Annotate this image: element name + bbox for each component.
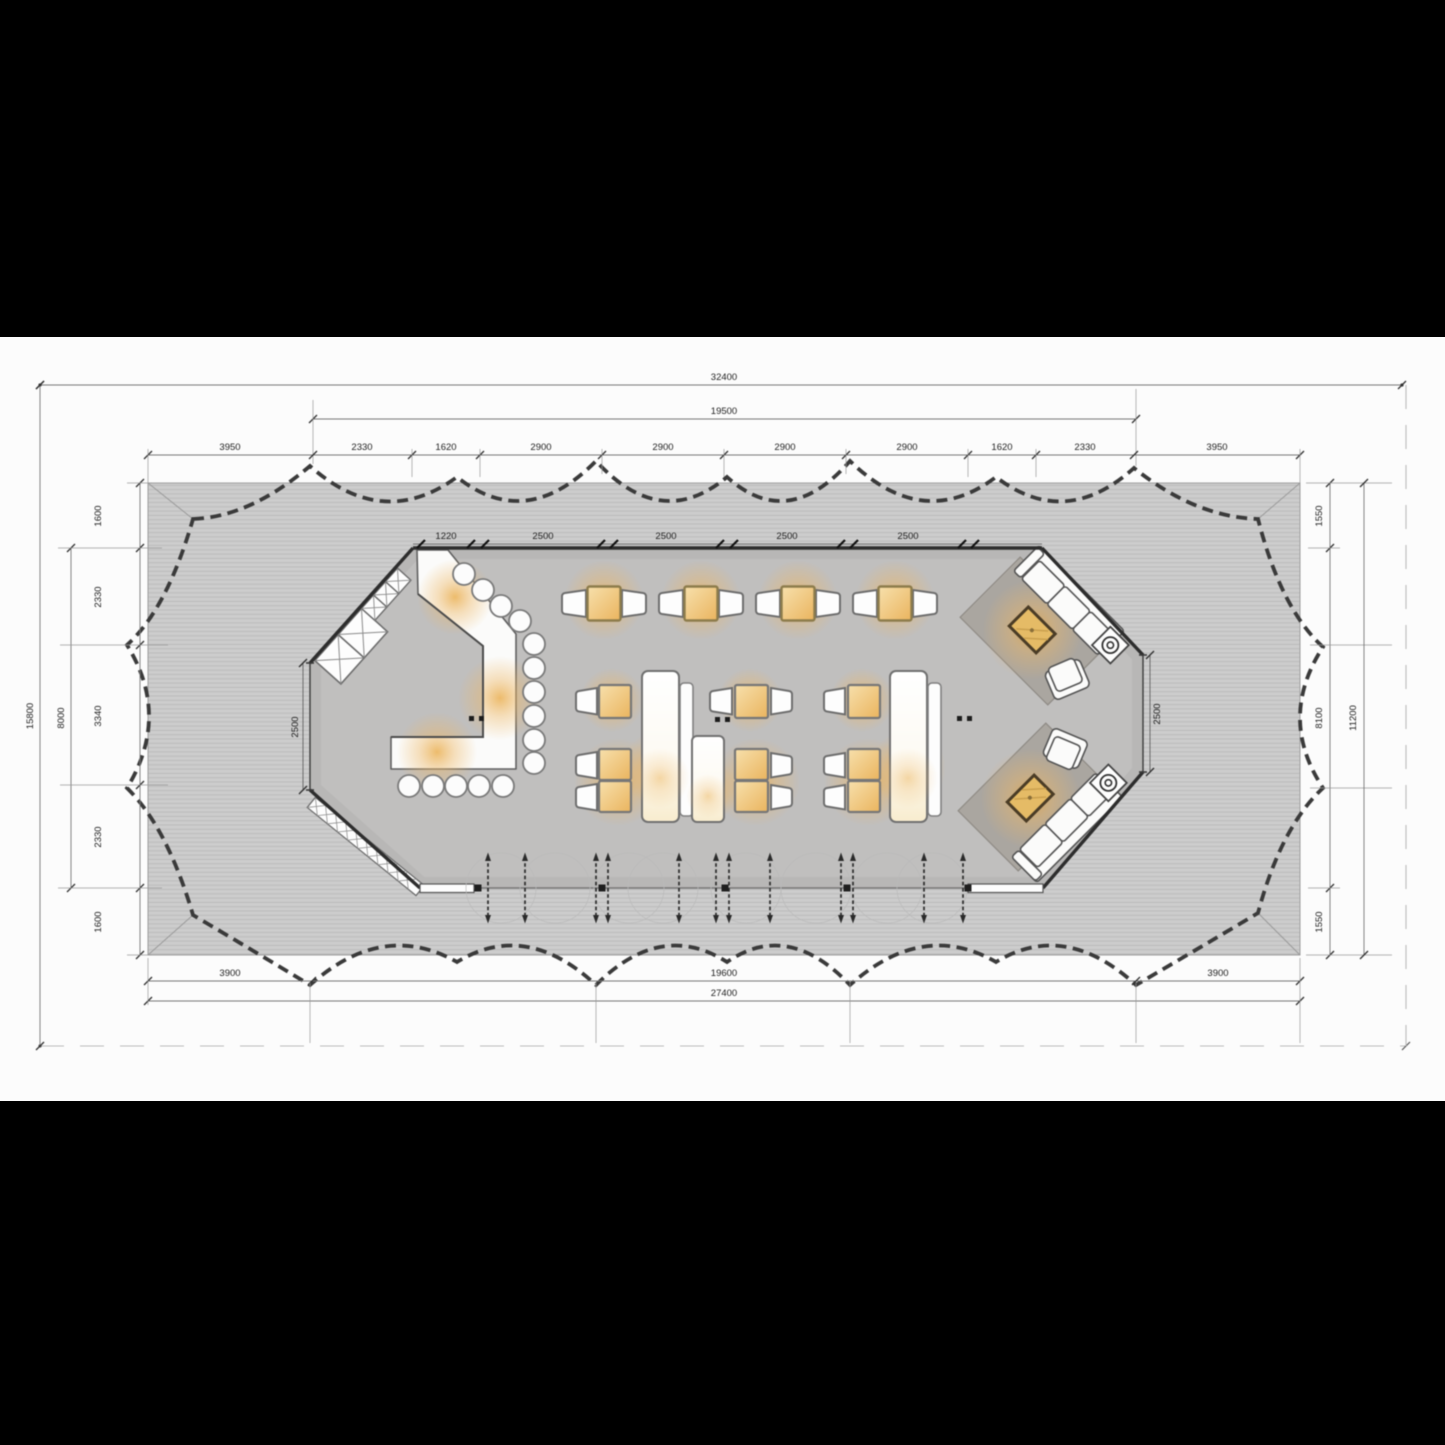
svg-text:2330: 2330 xyxy=(93,586,104,607)
svg-text:3950: 3950 xyxy=(1206,442,1227,453)
svg-text:2900: 2900 xyxy=(774,442,795,453)
svg-text:3900: 3900 xyxy=(1207,968,1228,979)
svg-text:2900: 2900 xyxy=(652,442,673,453)
svg-text:2900: 2900 xyxy=(530,442,551,453)
svg-text:1620: 1620 xyxy=(991,442,1012,453)
svg-text:2500: 2500 xyxy=(532,531,553,542)
svg-text:3340: 3340 xyxy=(93,705,104,726)
svg-text:1600: 1600 xyxy=(93,911,104,932)
svg-text:11200: 11200 xyxy=(1348,705,1359,731)
svg-text:2500: 2500 xyxy=(1152,703,1163,724)
svg-text:1600: 1600 xyxy=(93,505,104,526)
svg-text:2330: 2330 xyxy=(351,442,372,453)
svg-text:27400: 27400 xyxy=(711,988,737,999)
svg-text:2500: 2500 xyxy=(776,531,797,542)
svg-text:2900: 2900 xyxy=(896,442,917,453)
svg-text:3900: 3900 xyxy=(219,968,240,979)
svg-text:8100: 8100 xyxy=(1314,707,1325,728)
svg-text:15800: 15800 xyxy=(25,703,36,729)
svg-text:2330: 2330 xyxy=(93,826,104,847)
svg-text:2500: 2500 xyxy=(897,531,918,542)
svg-text:1550: 1550 xyxy=(1314,505,1325,526)
svg-text:2500: 2500 xyxy=(655,531,676,542)
svg-text:8000: 8000 xyxy=(56,707,67,728)
svg-text:19600: 19600 xyxy=(711,968,737,979)
svg-text:32400: 32400 xyxy=(711,372,737,383)
svg-text:1620: 1620 xyxy=(435,442,456,453)
svg-text:3950: 3950 xyxy=(219,442,240,453)
svg-text:1220: 1220 xyxy=(435,531,456,542)
svg-text:1550: 1550 xyxy=(1314,911,1325,932)
svg-text:2500: 2500 xyxy=(290,716,301,737)
svg-text:2330: 2330 xyxy=(1074,442,1095,453)
svg-text:19500: 19500 xyxy=(711,406,737,417)
